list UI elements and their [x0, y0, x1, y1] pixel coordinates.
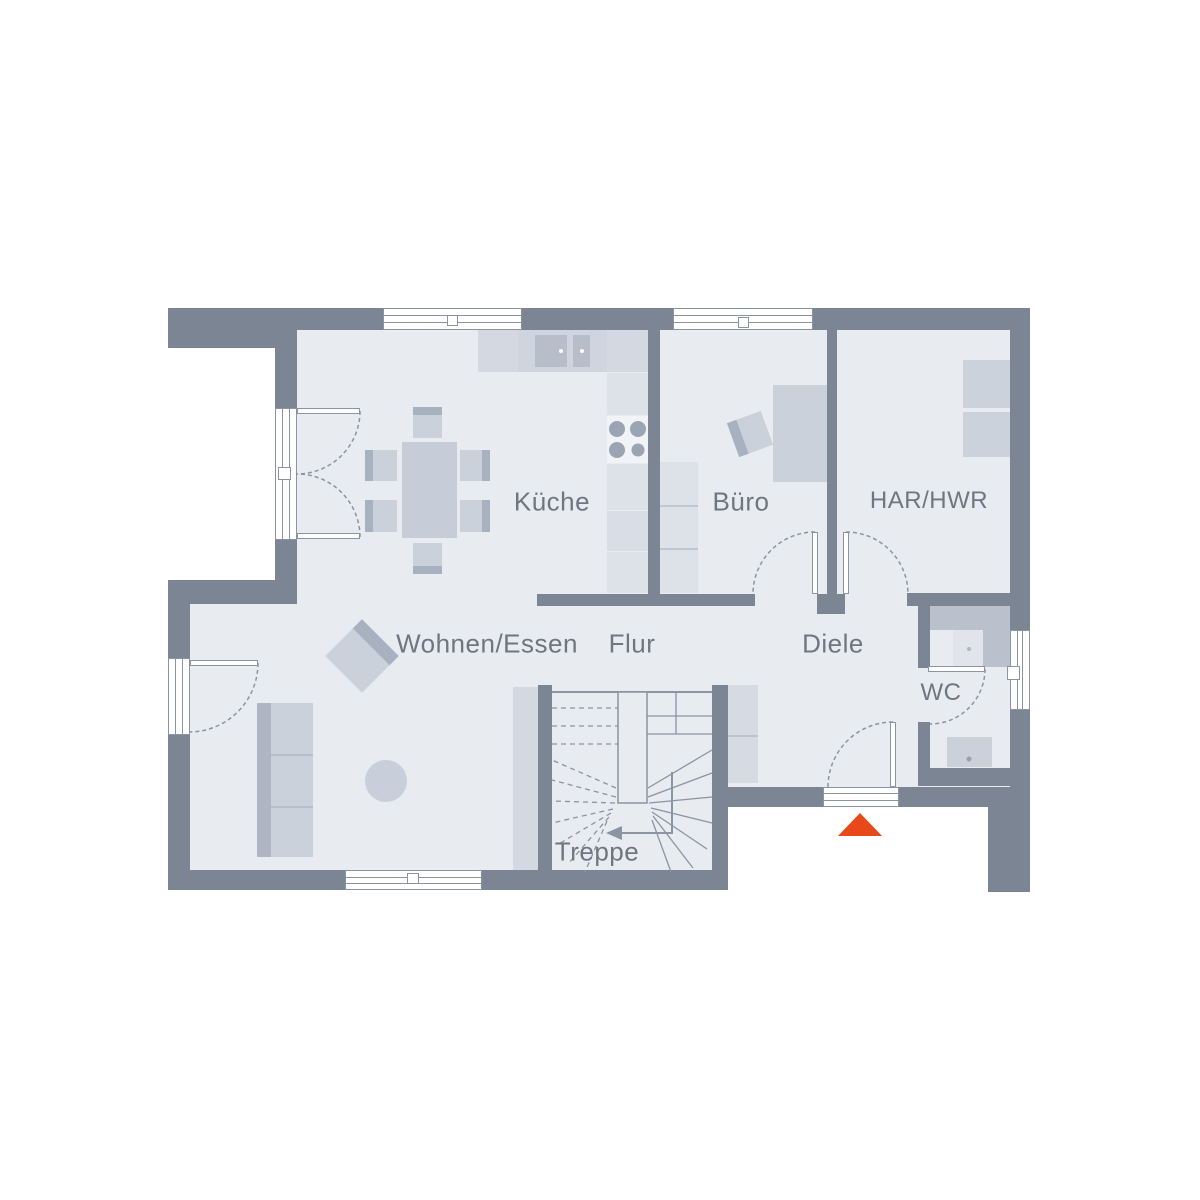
room-label-treppe: Treppe — [555, 837, 639, 868]
room-label-wohnen-essen: Wohnen/Essen — [396, 629, 578, 660]
door-leaf — [843, 532, 849, 594]
room-label-diele: Diele — [802, 629, 864, 660]
door-leaf — [928, 666, 985, 672]
door-leaf — [890, 722, 896, 787]
plan-linework — [0, 0, 1200, 1200]
window-handle — [447, 315, 458, 326]
floor-plan: Wohnen/Essen Küche Büro HAR/HWR Flur Die… — [0, 0, 1200, 1200]
door-swing-arcs — [190, 411, 985, 787]
toilet-drain — [967, 757, 972, 762]
room-label-flur: Flur — [609, 629, 656, 660]
window-handle — [1007, 666, 1020, 680]
entrance-marker-icon — [838, 813, 882, 836]
room-label-kueche: Küche — [514, 487, 590, 518]
door-leaf — [190, 660, 258, 666]
basin-drain — [967, 647, 971, 651]
door-leaf — [812, 532, 818, 594]
room-label-wc: WC — [921, 679, 962, 707]
window-handle — [407, 873, 419, 884]
room-label-har-hwr: HAR/HWR — [870, 487, 988, 515]
door-handle — [278, 467, 291, 480]
door-leaf — [297, 408, 360, 414]
window-handle — [738, 317, 749, 328]
door-leaf — [297, 533, 360, 539]
room-label-buero: Büro — [713, 487, 770, 518]
stove-burners — [609, 421, 646, 458]
